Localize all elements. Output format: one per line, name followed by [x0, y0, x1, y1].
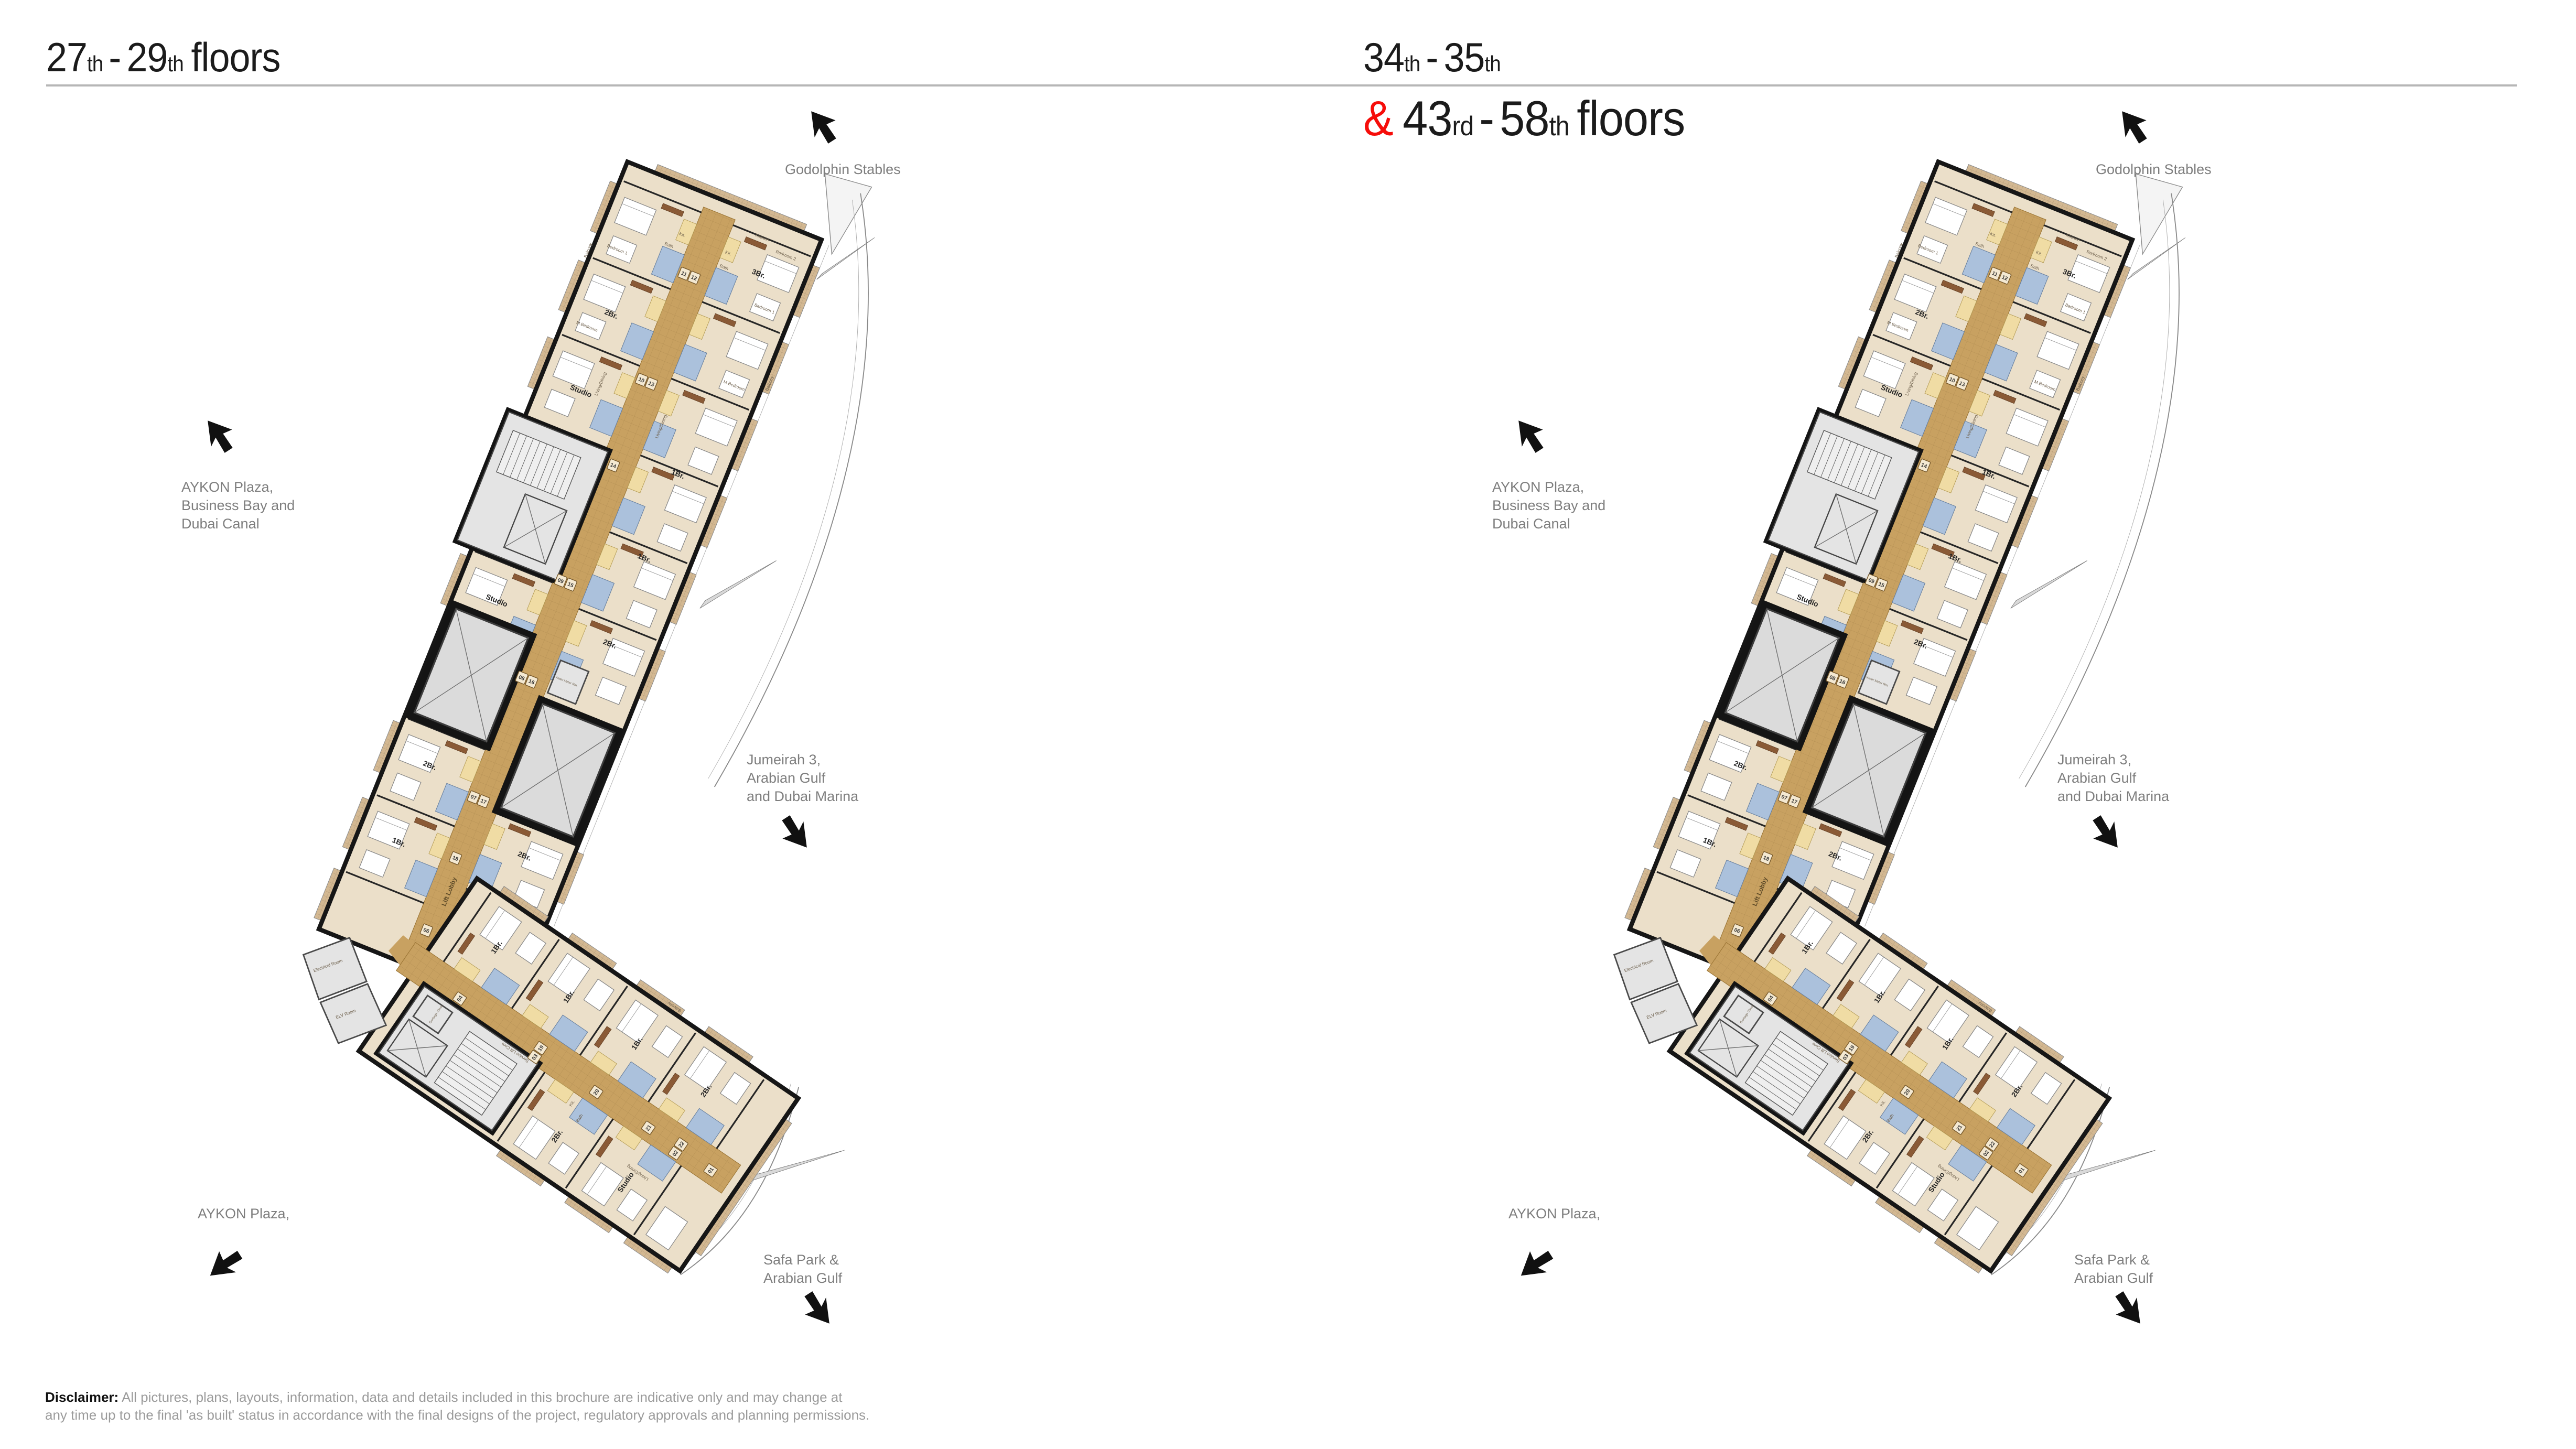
direction-arrow-icon	[2113, 1291, 2141, 1325]
brochure-page: { "colors": { "accent_red": "#f60d0a", "…	[0, 0, 2576, 1449]
direction-arrow-icon	[1517, 419, 1546, 453]
floor-plan-27-29	[294, 136, 902, 1282]
direction-label-safa-park: Safa Park & Arabian Gulf	[2074, 1251, 2153, 1288]
direction-label-aykon-plaza: AYKON Plaza, Business Bay and Dubai Cana…	[1492, 478, 1605, 533]
direction-label-aykon-plaza: AYKON Plaza, Business Bay and Dubai Cana…	[181, 478, 295, 533]
page-title-right-line1: 34th-35th	[1363, 34, 1501, 81]
floor-number: 58	[1500, 91, 1549, 146]
floor-number: 35	[1443, 34, 1484, 80]
direction-label-aykon-plaza-south: AYKON Plaza,	[198, 1205, 289, 1223]
floor-number: 27	[46, 34, 87, 80]
direction-arrow-icon	[2090, 815, 2119, 849]
direction-arrow-icon	[207, 419, 235, 453]
direction-label-jumeirah: Jumeirah 3, Arabian Gulf and Dubai Marin…	[747, 751, 858, 806]
direction-label-safa-park: Safa Park & Arabian Gulf	[763, 1251, 842, 1288]
direction-arrow-icon	[802, 1291, 831, 1325]
disclaimer: Disclaimer: All pictures, plans, layouts…	[45, 1388, 869, 1424]
floor-number: 43	[1403, 91, 1452, 146]
floor-number: 29	[126, 34, 167, 80]
header-divider	[46, 84, 2517, 86]
floor-number: 34	[1363, 34, 1404, 80]
direction-arrow-icon	[2121, 110, 2149, 144]
direction-label-godolphin: Godolphin Stables	[785, 160, 901, 179]
floor-plan-34-35-43-58	[1604, 136, 2213, 1282]
direction-label-aykon-plaza-south: AYKON Plaza,	[1508, 1205, 1600, 1223]
direction-arrow-icon	[780, 815, 808, 849]
direction-arrow-icon	[1520, 1249, 1554, 1277]
direction-arrow-icon	[810, 110, 838, 144]
direction-label-godolphin: Godolphin Stables	[2096, 160, 2212, 179]
direction-label-jumeirah: Jumeirah 3, Arabian Gulf and Dubai Marin…	[2057, 751, 2169, 806]
direction-arrow-icon	[209, 1249, 243, 1277]
page-title-left: 27th-29thfloors	[46, 34, 280, 81]
disclaimer-label: Disclaimer:	[45, 1389, 118, 1405]
ampersand-accent: &	[1363, 91, 1393, 146]
